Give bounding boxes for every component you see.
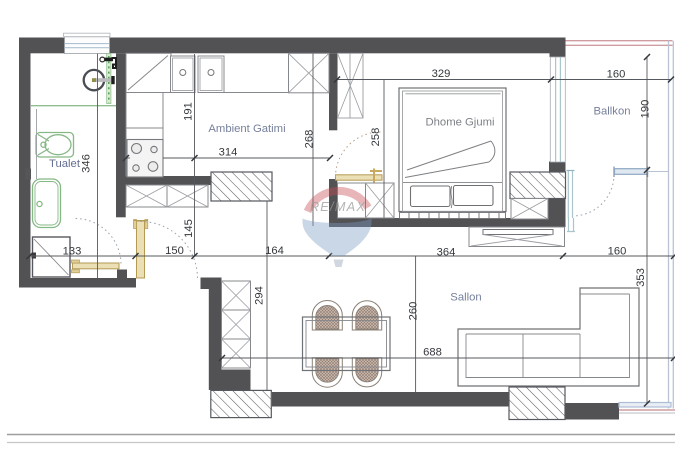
svg-text:329: 329 [432, 68, 451, 80]
svg-text:145: 145 [183, 219, 195, 238]
svg-text:258: 258 [370, 128, 382, 147]
svg-text:Ballkon: Ballkon [593, 106, 630, 118]
svg-text:191: 191 [183, 102, 195, 121]
svg-text:150: 150 [165, 245, 184, 257]
svg-text:133: 133 [63, 246, 82, 258]
svg-text:294: 294 [254, 286, 266, 305]
svg-text:Sallon: Sallon [450, 292, 481, 304]
svg-text:346: 346 [81, 154, 93, 173]
svg-text:Ambient Gatimi: Ambient Gatimi [208, 123, 285, 135]
svg-text:Dhome Gjumi: Dhome Gjumi [425, 117, 494, 129]
svg-text:260: 260 [408, 302, 420, 321]
svg-text:353: 353 [635, 268, 647, 287]
svg-text:364: 364 [437, 247, 456, 259]
svg-text:160: 160 [608, 246, 627, 258]
svg-text:190: 190 [639, 100, 651, 119]
svg-text:268: 268 [304, 130, 316, 149]
svg-text:160: 160 [607, 69, 626, 81]
svg-text:RE/MAX: RE/MAX [310, 199, 366, 214]
svg-text:Tualet: Tualet [49, 158, 81, 170]
svg-text:314: 314 [219, 147, 238, 159]
svg-text:688: 688 [423, 347, 442, 359]
svg-text:164: 164 [265, 245, 284, 257]
